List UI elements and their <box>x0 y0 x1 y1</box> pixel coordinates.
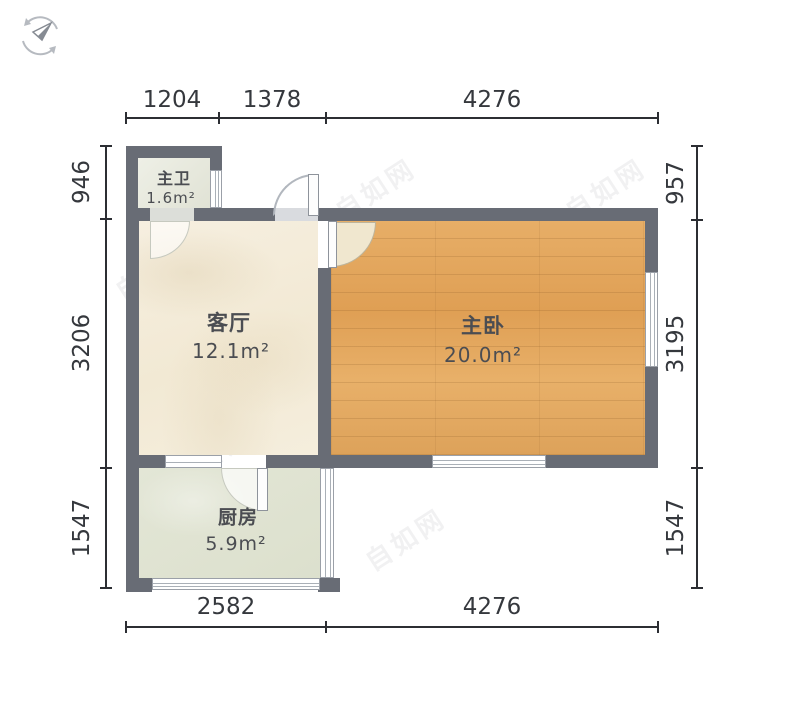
dim-tick <box>691 145 703 147</box>
wall <box>126 221 139 592</box>
dim-label-top: 4276 <box>463 87 522 113</box>
dim-label-bottom: 2582 <box>197 594 256 620</box>
kitchen-bottom-window <box>152 578 320 590</box>
living-room-name: 客厅 <box>207 307 251 337</box>
dim-tick <box>100 467 112 469</box>
wall <box>126 146 222 158</box>
wall <box>126 455 165 468</box>
dim-label-left: 946 <box>69 160 95 204</box>
wall <box>318 268 331 455</box>
dim-label-right: 3195 <box>663 315 689 374</box>
wall <box>645 208 658 272</box>
kitchen-name: 厨房 <box>218 503 258 530</box>
dimension-line-left <box>105 146 107 588</box>
dim-label-left: 3206 <box>69 314 95 373</box>
dim-label-right: 957 <box>663 161 689 205</box>
dim-tick <box>325 621 327 633</box>
dim-label-left: 1547 <box>69 499 95 558</box>
dim-tick <box>657 621 659 633</box>
bathroom-area: 1.6m² <box>146 189 195 207</box>
bedroom-area: 20.0m² <box>444 343 522 367</box>
dim-tick <box>100 587 112 589</box>
dim-label-top: 1204 <box>143 87 202 113</box>
bedroom-bottom-window <box>432 455 546 468</box>
compass-icon <box>14 10 66 62</box>
bedroom-name: 主卧 <box>461 310 505 340</box>
wall <box>318 578 340 592</box>
bathroom-window <box>210 170 222 208</box>
dimension-line-bottom <box>126 626 658 628</box>
kitchen-door-leaf <box>257 468 268 511</box>
bedroom-right-window <box>645 272 658 367</box>
wall <box>331 455 432 468</box>
kitchen-right-window <box>320 468 334 578</box>
dim-tick <box>218 112 220 124</box>
dimension-line-top <box>126 117 658 119</box>
kitchen-pass-window <box>165 455 222 468</box>
living-room-floor <box>139 221 318 455</box>
dim-tick <box>125 621 127 633</box>
entry-door-leaf <box>308 174 319 216</box>
wall <box>645 367 658 468</box>
watermark: 自如网 <box>357 498 453 578</box>
dim-tick <box>691 219 703 221</box>
bedroom-door-leaf <box>328 221 337 268</box>
dim-label-bottom: 4276 <box>463 594 522 620</box>
dim-label-right: 1547 <box>663 499 689 558</box>
bathroom-door-opening <box>150 208 194 221</box>
floor-plan: 自如网 自如网 自如网 自如网 自如网 自如网 <box>0 0 800 711</box>
dim-tick <box>657 112 659 124</box>
bathroom-name: 主卫 <box>157 165 191 189</box>
dim-tick <box>691 467 703 469</box>
wall <box>266 455 331 468</box>
kitchen-area: 5.9m² <box>205 533 266 555</box>
wall <box>546 455 658 468</box>
dim-tick <box>125 112 127 124</box>
wall <box>318 208 658 221</box>
wall <box>210 146 222 170</box>
wall <box>194 208 275 221</box>
wall <box>126 208 150 221</box>
dim-tick <box>691 587 703 589</box>
dim-tick <box>100 218 112 220</box>
dim-tick <box>325 112 327 124</box>
dim-tick <box>100 145 112 147</box>
living-room-area: 12.1m² <box>192 339 270 363</box>
dimension-line-right <box>696 146 698 588</box>
wall <box>126 578 152 592</box>
dim-label-top: 1378 <box>243 87 302 113</box>
